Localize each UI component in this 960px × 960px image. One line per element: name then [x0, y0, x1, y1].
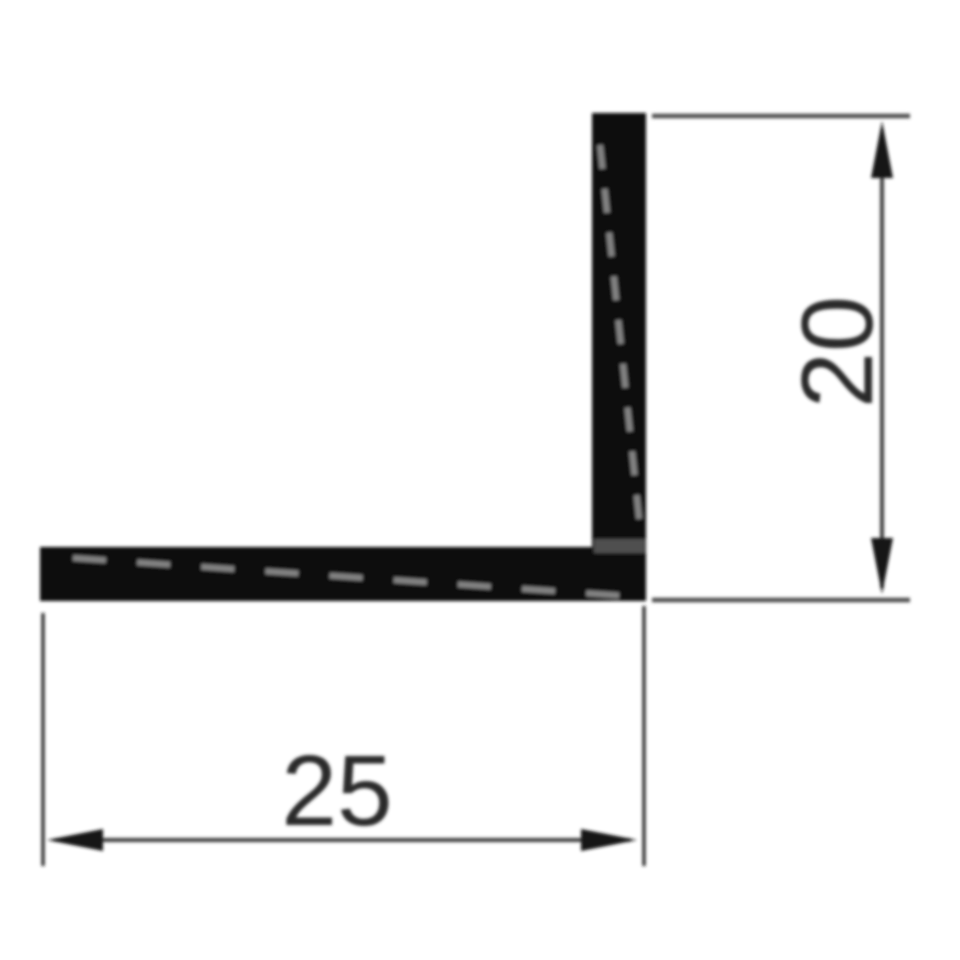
svg-text:20: 20 — [782, 296, 894, 408]
svg-text:25: 25 — [281, 735, 392, 847]
